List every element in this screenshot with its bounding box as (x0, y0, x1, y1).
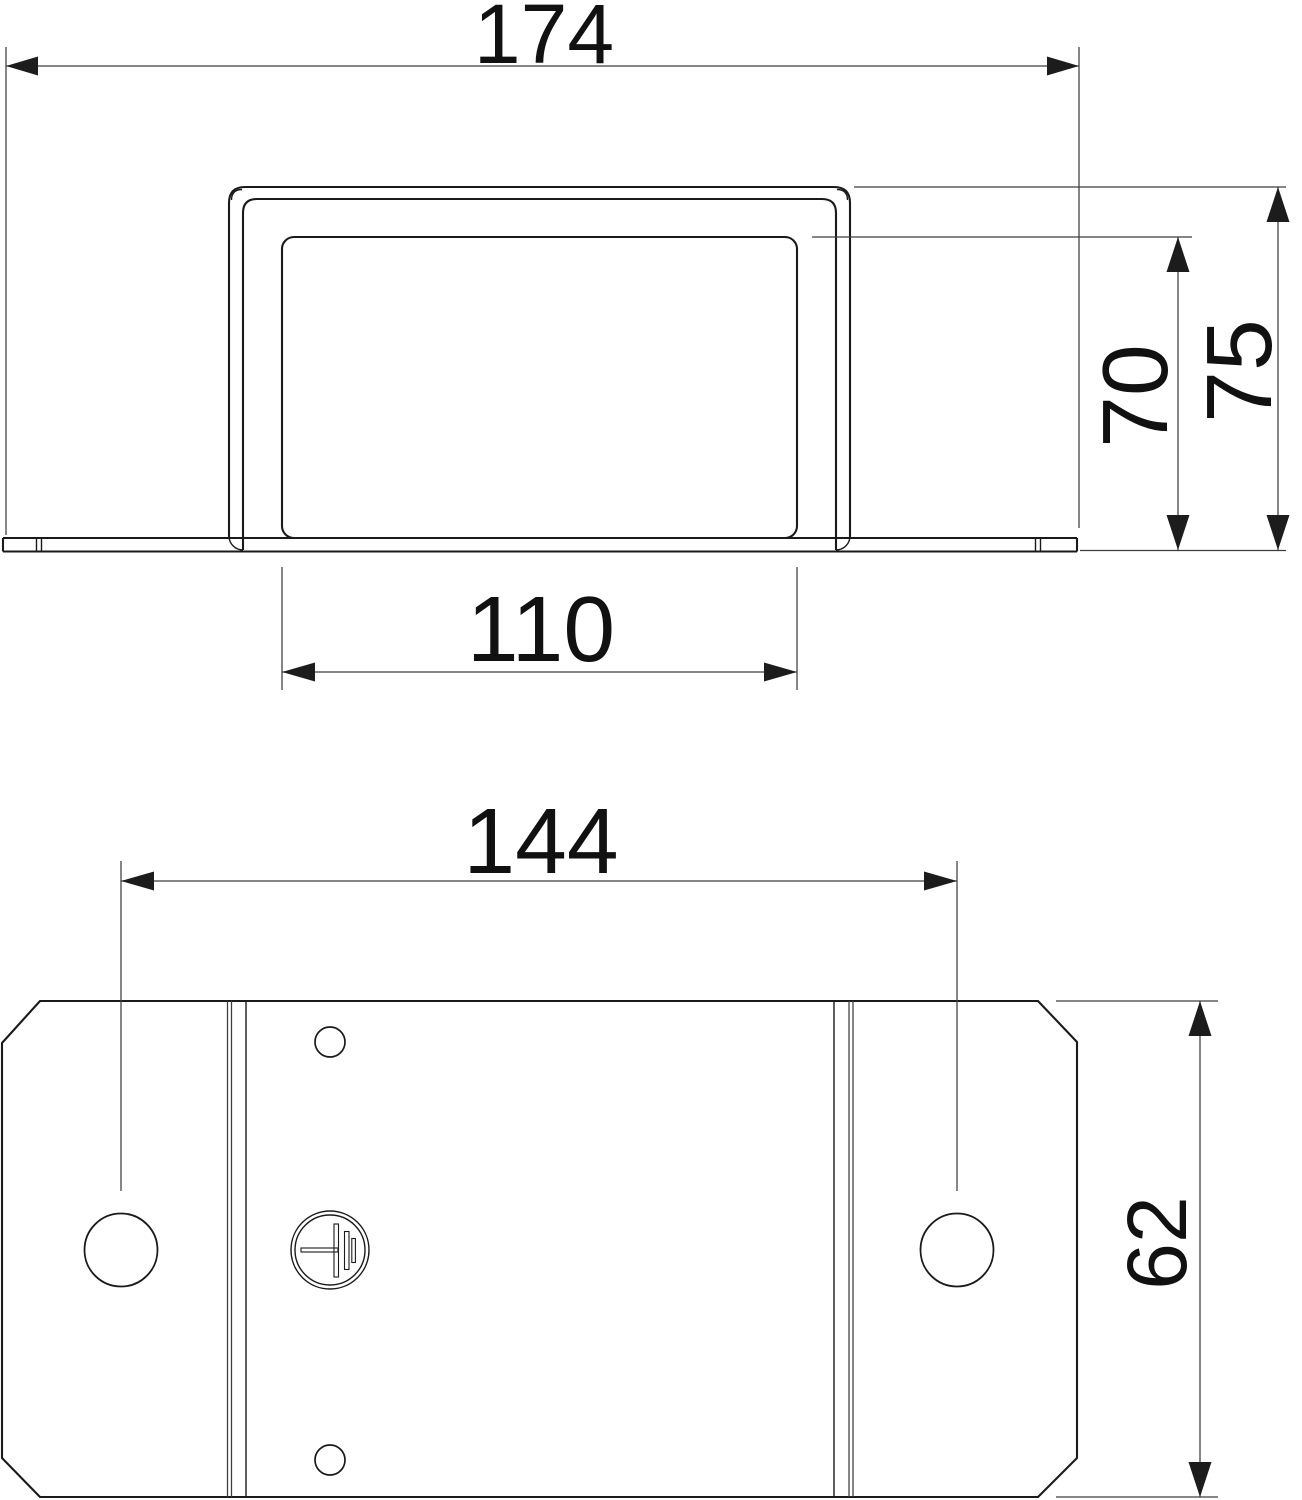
dimension-plate-depth: 62 (1056, 1001, 1218, 1497)
dim-value-overall-height: 75 (1187, 319, 1291, 422)
technical-drawing: 174 110 70 (0, 0, 1302, 1500)
arrowhead-right (1047, 57, 1079, 76)
arrowhead-top (1167, 237, 1190, 272)
mounting-hole-left (85, 1214, 158, 1287)
dimension-overall-height: 75 (854, 187, 1291, 551)
profile-view: 174 110 70 (3, 0, 1291, 690)
mounting-hole-right (921, 1214, 994, 1287)
dim-value-inner-height: 70 (1083, 344, 1187, 447)
arrowhead-bottom (1189, 1462, 1212, 1497)
flange-slot-right (1036, 538, 1041, 552)
arrowhead-top (1267, 187, 1290, 222)
pilot-hole-top (315, 1027, 345, 1057)
flange-slot-left (37, 538, 42, 552)
opening-rectangle (282, 237, 797, 538)
arrowhead-left (6, 57, 38, 76)
plan-view: 144 62 (2, 789, 1218, 1497)
dim-value-plate-depth: 62 (1110, 1196, 1204, 1289)
ground-bar-short (352, 1239, 356, 1263)
flange-strip (3, 538, 1077, 552)
hat-profile (229, 187, 850, 550)
pilot-hole-bottom (315, 1445, 345, 1475)
arrowhead-left (282, 663, 315, 682)
ground-circle-outer (291, 1211, 369, 1289)
arrowhead-bottom (1167, 515, 1190, 550)
arrowhead-right (764, 663, 797, 682)
dimension-overall-width: 174 (6, 0, 1079, 535)
dim-value-overall-width: 174 (474, 0, 614, 81)
arrowhead-top (1189, 1001, 1212, 1036)
dim-value-hole-spacing: 144 (463, 789, 618, 893)
bend-lines (228, 1001, 854, 1497)
dim-value-opening-width: 110 (467, 577, 615, 681)
arrowhead-right (924, 872, 957, 891)
hat-inner-line (243, 199, 836, 550)
dimension-inner-height: 70 (812, 237, 1192, 550)
ground-bar-medium (345, 1232, 350, 1270)
dimension-opening-width: 110 (282, 567, 797, 690)
ground-stem (301, 1248, 338, 1252)
hat-outer-line (229, 187, 850, 538)
arrowhead-bottom (1267, 515, 1290, 550)
arrowhead-left (121, 872, 154, 891)
ground-circle-inner (295, 1215, 365, 1285)
earth-ground-symbol (291, 1211, 369, 1289)
technical-drawing-canvas: 174 110 70 (0, 0, 1302, 1500)
plate-outline (2, 1001, 1077, 1497)
